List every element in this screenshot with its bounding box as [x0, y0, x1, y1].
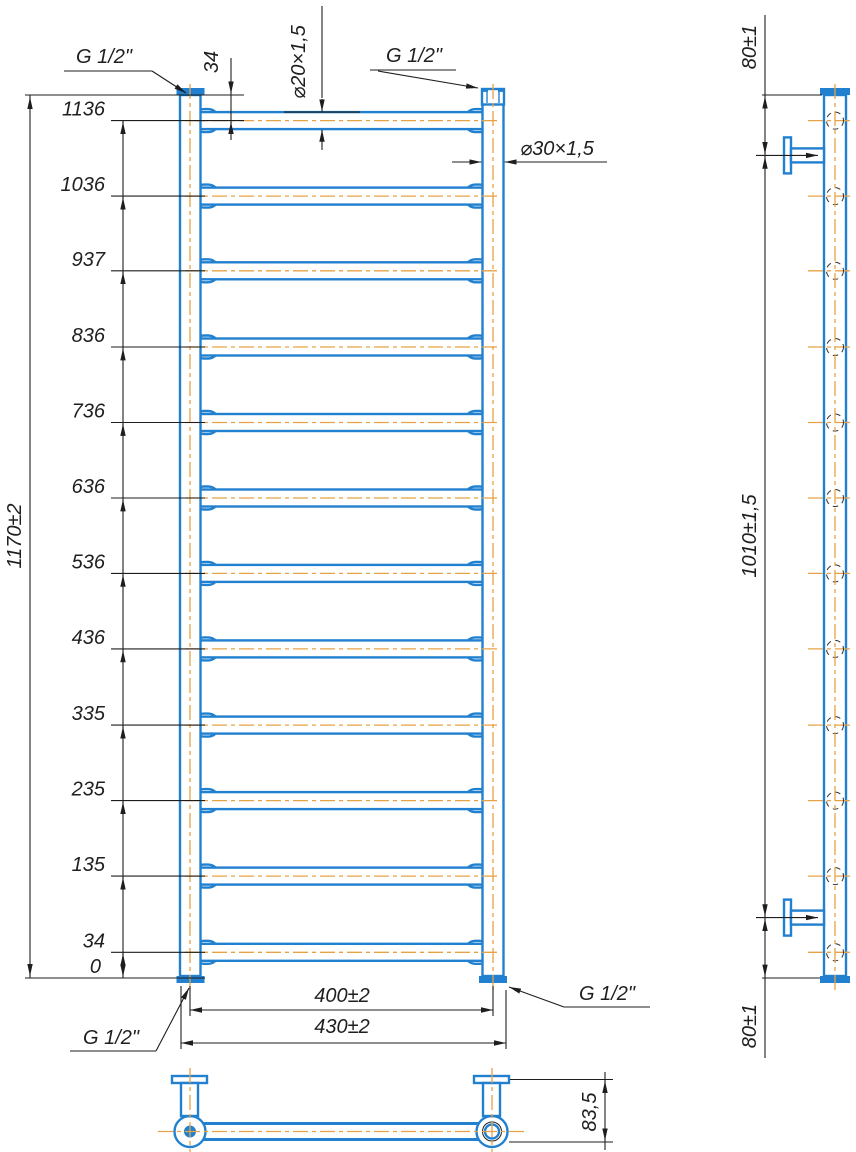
bracket-top-offset-label: 80±1	[739, 25, 761, 69]
thread-leader-bottom-left	[156, 988, 189, 1051]
level-label-10: 135	[72, 854, 106, 876]
axis-width-label: 400±2	[314, 985, 369, 1007]
level-label-5: 636	[72, 476, 106, 498]
thread-leader-bottom-right	[509, 987, 564, 1007]
level-label-3: 836	[72, 325, 106, 347]
level-label-1: 1036	[61, 174, 106, 196]
front-dimensions: 0 1136103693783673663653643633523513534 …	[4, 6, 650, 1051]
first-rung-offset-label: 34	[201, 51, 223, 73]
front-centerlines	[185, 84, 497, 990]
bottom-view	[158, 1068, 527, 1152]
level-label-0: 0	[90, 956, 101, 978]
technical-drawing-towel-rail: 0 1136103693783673663653643633523513534 …	[0, 0, 856, 1152]
overall-width-label: 430±2	[314, 1016, 369, 1038]
thread-leader-top-right	[378, 71, 478, 88]
bracket-span-label: 1010±1,5	[739, 493, 761, 577]
rung-centerlines	[185, 121, 497, 953]
drawing-svg: 0 1136103693783673663653643633523513534 …	[0, 0, 856, 1152]
thread-label-bottom-left: G 1/2"	[83, 1027, 140, 1049]
side-view	[784, 84, 853, 990]
level-label-4: 736	[72, 401, 106, 423]
level-label-0: 1136	[62, 99, 106, 121]
depth-label: 83,5	[579, 1092, 601, 1132]
collector-dia-label: ⌀30×1,5	[520, 138, 595, 160]
overall-height-label: 1170±2	[4, 503, 26, 568]
level-label-11: 34	[83, 930, 105, 952]
thread-leader-top-left	[152, 71, 186, 93]
level-label-2: 937	[72, 249, 106, 271]
bottom-dimensions: 83,5	[509, 1072, 613, 1150]
front-view	[177, 84, 508, 990]
level-label-8: 335	[72, 703, 106, 725]
thread-label-top-left: G 1/2"	[76, 46, 133, 68]
rungs-group	[193, 109, 491, 964]
level-label-9: 235	[71, 779, 106, 801]
bracket-bottom-offset-label: 80±1	[739, 1004, 761, 1048]
side-dimensions: 80±1 1010±1,5 80±1	[739, 15, 822, 1058]
thread-label-bottom-right: G 1/2"	[579, 983, 636, 1005]
thread-label-top-right: G 1/2"	[386, 45, 443, 67]
rung-dia-label: ⌀20×1,5	[288, 24, 310, 99]
level-label-6: 536	[72, 551, 106, 573]
level-label-7: 436	[72, 627, 106, 649]
